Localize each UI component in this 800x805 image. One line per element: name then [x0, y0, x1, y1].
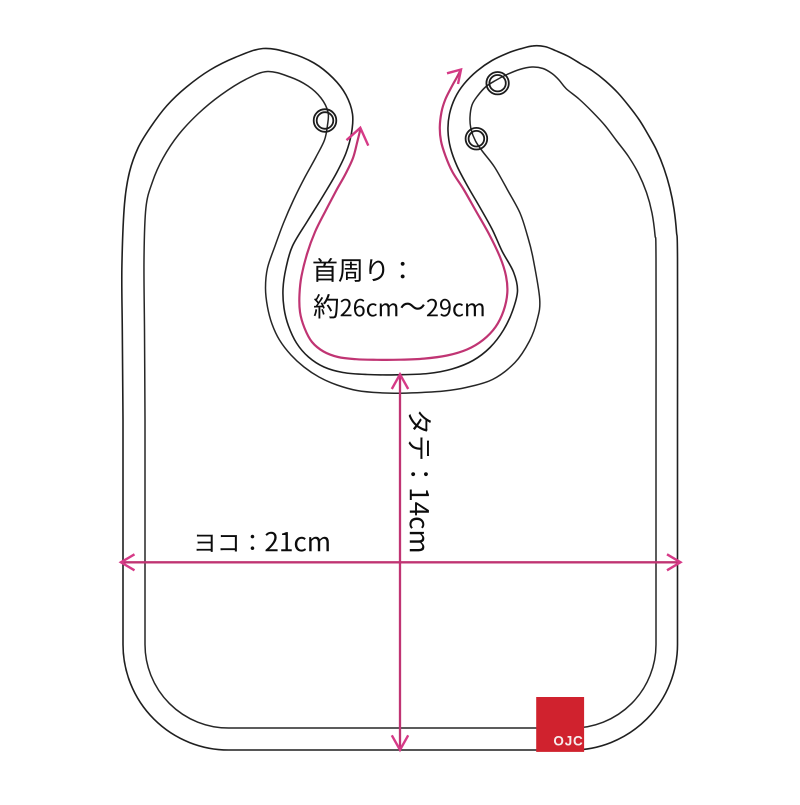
- svg-text:OJC: OJC: [553, 734, 583, 749]
